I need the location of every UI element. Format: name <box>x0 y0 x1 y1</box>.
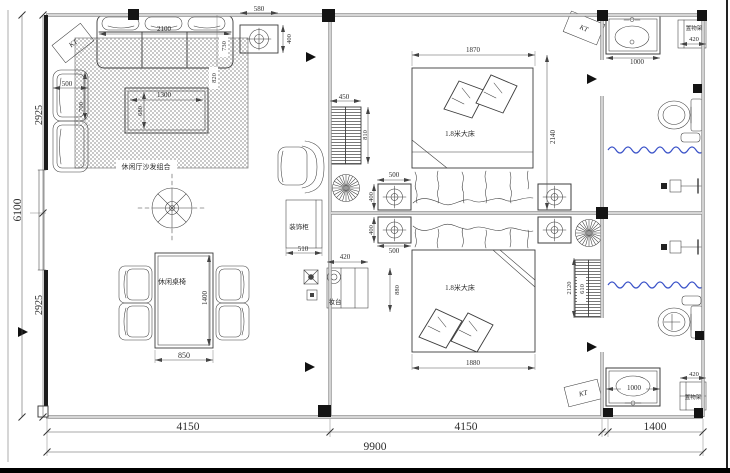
dim-bottom-right: 1400 <box>644 421 667 433</box>
label-dresser: 妆台 <box>329 297 342 306</box>
towel-bar-icon <box>661 240 702 254</box>
dim-bed2-offset: 880 <box>394 285 401 295</box>
label-bed2: 1.8米大床 <box>445 283 475 292</box>
window <box>38 170 46 270</box>
ac-label: KT <box>577 23 590 34</box>
dim-sofa-width: 2100 <box>157 25 172 33</box>
dim-bed1-length: 2140 <box>549 130 557 145</box>
ceiling-lamp-icon <box>138 174 206 242</box>
marker-triangle <box>587 74 597 84</box>
dim-bottom-total: 9900 <box>364 441 387 453</box>
sheet-frame-bottom <box>0 468 730 473</box>
dim-cabinet-width: 510 <box>298 245 309 253</box>
fan-icon <box>333 175 360 202</box>
dim-wardrobe1-width: 450 <box>339 93 350 101</box>
dim-armchair-width: 500 <box>62 80 73 88</box>
dim-dresser-width: 420 <box>340 253 351 261</box>
dim-sofa-depth: 730 <box>221 41 228 51</box>
dim-bed2-length: 2120 <box>566 282 573 295</box>
vanity-top <box>606 16 660 54</box>
dining-chair <box>216 266 249 303</box>
dim-sofa-side: 820 <box>211 73 218 83</box>
dim-wardrobe1-depth: 810 <box>362 130 369 140</box>
nightstand <box>538 184 571 210</box>
dim-side-table-width: 580 <box>254 5 265 13</box>
towel-bar-icon <box>661 179 702 193</box>
dim-shelf-top-width: 420 <box>689 36 699 43</box>
spotlight-icon <box>307 290 317 300</box>
label-decor-cabinet: 装饰柜 <box>289 222 309 231</box>
dim-nightstand-width: 500 <box>389 171 400 179</box>
nightstand <box>378 217 411 243</box>
label-shelf-bottom: 置物架 <box>685 393 702 401</box>
fan-icon <box>576 220 603 247</box>
label-shelf-top: 置物架 <box>686 24 703 32</box>
ac-label: KT <box>577 388 589 398</box>
bathroom-bin <box>682 296 701 305</box>
dim-nightstand-depth: 400 <box>368 192 375 202</box>
dim-side-table-depth: 400 <box>286 34 293 44</box>
nightstand <box>538 217 571 243</box>
dim-bottom-left: 4150 <box>177 421 200 433</box>
dim-armchair-depth: 700 <box>78 102 85 112</box>
toilet <box>658 99 702 131</box>
dining-chair <box>119 303 152 340</box>
spotlight-icon <box>304 270 318 284</box>
shower-line <box>608 282 704 288</box>
dim-vanity-top-width: 1000 <box>630 58 645 66</box>
dim-coffee-table-depth: 680 <box>137 106 144 116</box>
marker-triangle <box>587 342 597 352</box>
label-bed1: 1.8米大床 <box>445 129 475 138</box>
marker-triangle <box>305 362 315 372</box>
dim-bed1-width: 1870 <box>466 46 481 54</box>
toilet-cross <box>664 314 680 330</box>
dining-chair <box>119 266 152 303</box>
rug <box>75 38 248 168</box>
label-dining-set: 休闲桌椅 <box>158 277 186 286</box>
dim-vanity-bottom-width: 1000 <box>627 384 642 392</box>
dim-shelf-bottom-width: 420 <box>689 371 699 378</box>
dim-left-total: 6100 <box>12 198 24 221</box>
dim-nightstand-depth: 400 <box>368 225 375 235</box>
dim-wardrobe2-width: 610 <box>579 284 586 294</box>
dim-dining-width: 850 <box>178 351 190 360</box>
dim-left-lower: 2925 <box>34 295 45 315</box>
dim-left-upper: 2925 <box>34 105 45 125</box>
lounge-chair <box>278 141 324 193</box>
label-sofa-group: 休闲厅沙发组合 <box>122 162 171 171</box>
marker-triangle <box>18 327 28 337</box>
sofa-cushion <box>188 17 225 30</box>
dim-bed2-width: 1880 <box>466 359 481 367</box>
dining-chair <box>216 303 249 340</box>
nightstand <box>378 184 411 210</box>
marker-triangle <box>306 52 316 62</box>
dim-bottom-middle: 4150 <box>455 421 478 433</box>
dim-coffee-table-width: 1300 <box>157 91 172 99</box>
dim-nightstand-width: 500 <box>389 247 400 255</box>
floor-plan: KT KT KT <box>0 0 730 473</box>
shower-line <box>608 147 704 153</box>
bathroom-bin <box>681 133 700 142</box>
dim-dining-length: 1400 <box>201 291 209 306</box>
ac-unit: KT <box>564 379 602 407</box>
